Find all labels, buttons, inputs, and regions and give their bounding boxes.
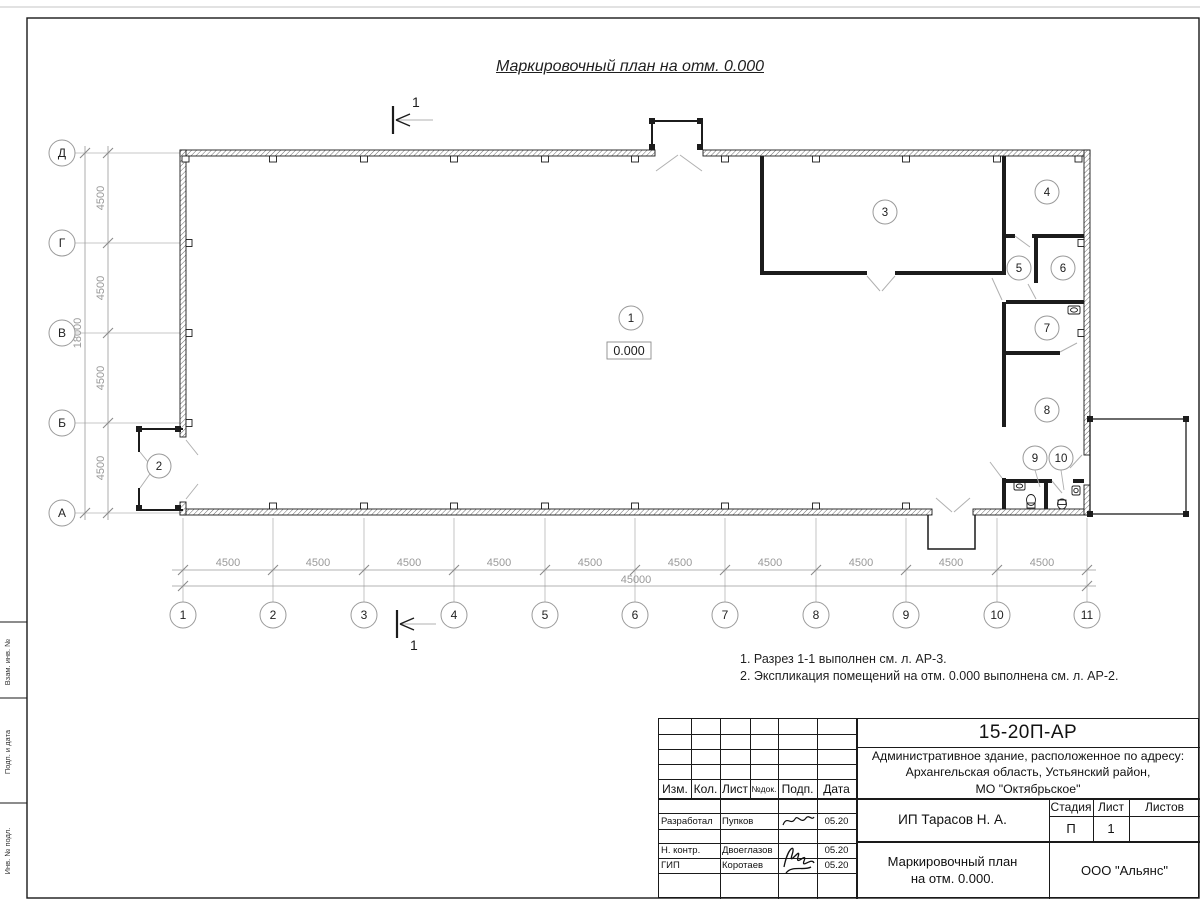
dim-bay: 4500	[306, 557, 330, 569]
dim-bay: 4500	[849, 557, 873, 569]
row-name-gip: Коротаев	[722, 858, 777, 873]
dim-bay: 4500	[95, 186, 107, 210]
col-header-data: Дата	[817, 779, 856, 798]
col-header-izm: Изм.	[659, 779, 691, 798]
sheet-header: Лист	[1093, 798, 1129, 816]
signature-developer	[780, 812, 816, 829]
margin-label-vzam: Взам. инв. №	[3, 639, 12, 685]
dim-bay: 4500	[487, 557, 511, 569]
row-role-developer: Разработал	[661, 813, 719, 829]
drawing-title: Маркировочный план на отм. 0.000	[440, 58, 820, 76]
dim-bay: 4500	[95, 276, 107, 300]
project-line-2: Архангельская область, Устьянский район,	[906, 764, 1151, 781]
perimeter-walls	[180, 150, 1090, 515]
axis-bubbles: 1 2 3 4 5 6 7 8 9 10 11 Д Г В Б А	[49, 140, 1100, 628]
section-mark-top: 1	[393, 94, 433, 134]
signature-ncontrol-gip	[778, 837, 817, 879]
drawing-name: Маркировочный план на отм. 0.000.	[856, 841, 1049, 899]
drawing-name-line-1: Маркировочный план	[888, 853, 1018, 870]
dim-bay: 4500	[758, 557, 782, 569]
row-name-developer: Пупков	[722, 813, 777, 829]
elevation-value: 0.000	[613, 344, 644, 358]
margin-label-inv: Инв. № подл.	[3, 828, 12, 875]
axis-col-11: 11	[1081, 608, 1094, 622]
margin-label-podp: Подп. и дата	[3, 729, 12, 774]
axis-row-a: А	[58, 506, 66, 520]
entrance-porches	[136, 118, 1189, 549]
doc-code: 15-20П-АР	[856, 719, 1200, 747]
title-block: Изм. Кол. Лист №док. Подп. Дата Разработ…	[658, 718, 1199, 898]
room-tag-4: 4	[1044, 187, 1051, 199]
room-tag-6: 6	[1060, 263, 1066, 275]
project-line-1: Административное здание, расположенное п…	[872, 748, 1184, 765]
note-line-2: 2. Экспликация помещений на отм. 0.000 в…	[740, 668, 1200, 685]
dim-bay: 4500	[939, 557, 963, 569]
row-name-ncontrol: Двоеглазов	[722, 843, 777, 858]
note-line-1: 1. Разрез 1-1 выполнен см. л. АР-3.	[740, 651, 1200, 668]
section-label: 1	[412, 94, 420, 110]
room-tag-8: 8	[1044, 405, 1050, 417]
row-role-gip: ГИП	[661, 858, 719, 873]
grid-axis-lines	[75, 153, 1087, 602]
room-tag-5: 5	[1016, 263, 1022, 275]
room-tag-3: 3	[882, 207, 888, 219]
row-date-ncontrol: 05.20	[817, 843, 856, 858]
room-tag-7: 7	[1044, 323, 1050, 335]
axis-row-v: В	[58, 326, 66, 340]
section-mark-bottom: 1	[397, 610, 436, 653]
notes-block: 1. Разрез 1-1 выполнен см. л. АР-3. 2. Э…	[740, 651, 1200, 685]
room-tag-2: 2	[156, 461, 162, 473]
col-header-list: Лист	[720, 779, 750, 798]
axis-col-1: 1	[180, 608, 187, 622]
axis-row-g: Г	[59, 236, 66, 250]
row-date-gip: 05.20	[817, 858, 856, 873]
dim-bay: 4500	[95, 456, 107, 480]
room-tag-10: 10	[1055, 453, 1068, 465]
row-date-developer: 05.20	[817, 813, 856, 829]
axis-row-d: Д	[58, 146, 66, 160]
sheet-value: 1	[1093, 816, 1129, 841]
section-label: 1	[410, 637, 418, 653]
col-header-podp: Подп.	[778, 779, 817, 798]
room-tags: 1 2 3 4 5 6 7 8 9 10	[147, 180, 1075, 478]
project-description: Административное здание, расположенное п…	[856, 747, 1200, 798]
room-tag-1: 1	[628, 313, 634, 325]
dim-bay: 4500	[397, 557, 421, 569]
dim-bay: 4500	[1030, 557, 1054, 569]
axis-row-b: Б	[58, 416, 66, 430]
project-line-3: МО "Октябрьское"	[976, 781, 1081, 798]
client-name: ИП Тарасов Н. А.	[856, 798, 1049, 841]
column-markers	[182, 156, 1084, 509]
dimension-labels: 4500 4500 4500 4500 4500 4500 4500 4500 …	[72, 186, 1054, 586]
axis-col-9: 9	[903, 608, 910, 622]
dimension-ticks	[80, 148, 1092, 591]
stage-value: П	[1049, 816, 1093, 841]
axis-col-7: 7	[722, 608, 729, 622]
company-name: ООО "Альянс"	[1049, 841, 1200, 899]
dim-bay: 4500	[578, 557, 602, 569]
axis-col-2: 2	[270, 608, 277, 622]
elevation-mark: 0.000	[607, 342, 651, 359]
drawing-name-line-2: на отм. 0.000.	[911, 870, 994, 887]
drawing-sheet: { "drawing": { "title": "Маркировочный п…	[0, 0, 1200, 900]
row-role-ncontrol: Н. контр.	[661, 843, 719, 858]
door-leaves	[140, 155, 1082, 512]
dim-bay: 4500	[668, 557, 692, 569]
room-tag-9: 9	[1032, 453, 1038, 465]
axis-col-4: 4	[451, 608, 458, 622]
dim-total-width: 45000	[621, 574, 652, 586]
col-header-kol: Кол.	[691, 779, 720, 798]
axis-col-10: 10	[990, 608, 1004, 622]
axis-col-6: 6	[632, 608, 639, 622]
axis-col-3: 3	[361, 608, 368, 622]
dim-bay: 4500	[216, 557, 240, 569]
dimension-lines: 4500 4500 4500 4500 4500 4500 4500 4500 …	[72, 146, 1096, 591]
sheets-header: Листов	[1129, 798, 1200, 816]
col-header-doc: №док.	[750, 779, 778, 798]
axis-col-8: 8	[813, 608, 820, 622]
stage-header: Стадия	[1049, 798, 1093, 816]
dim-bay: 4500	[95, 366, 107, 390]
axis-col-5: 5	[542, 608, 549, 622]
